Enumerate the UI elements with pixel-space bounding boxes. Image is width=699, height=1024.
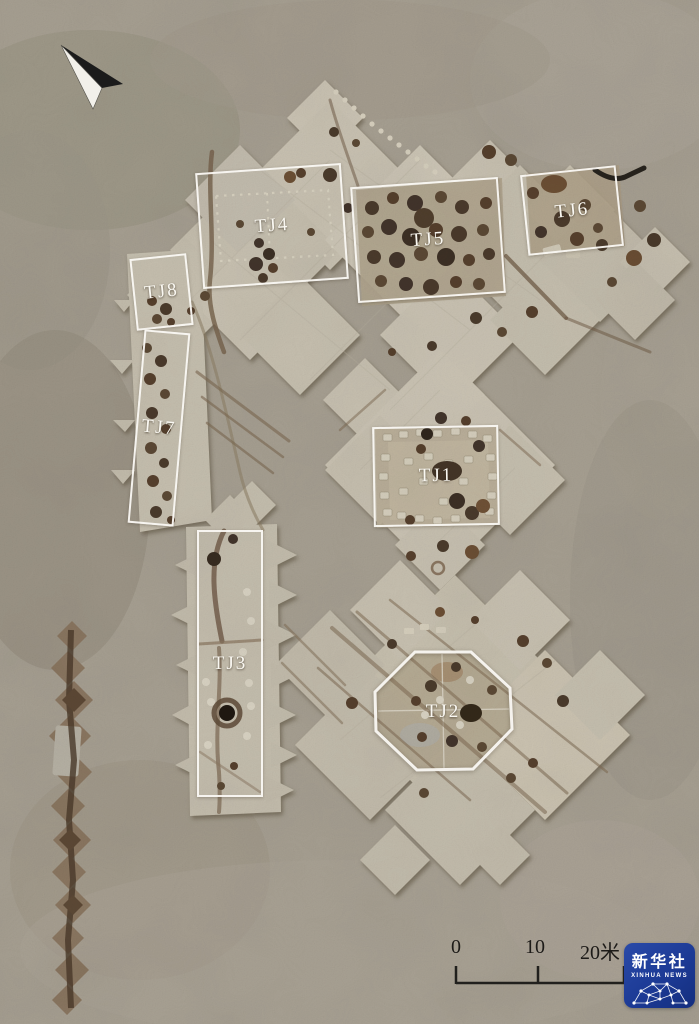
survey-box-tj6: TJ6 [520, 165, 624, 256]
globe-network-icon [631, 981, 689, 1006]
survey-label-tj5: TJ5 [410, 228, 446, 252]
survey-label-tj8: TJ8 [143, 279, 180, 304]
survey-box-tj1: TJ1 [372, 425, 500, 527]
xinhua-logo-cn: 新华社 [632, 948, 688, 972]
survey-label-tj2: TJ2 [426, 701, 461, 723]
survey-label-tj4: TJ4 [254, 214, 290, 238]
scale-tick-0: 0 [446, 936, 466, 959]
survey-box-tj5: TJ5 [350, 177, 506, 303]
scale-tick-10: 10 [515, 936, 555, 959]
survey-box-tj4: TJ4 [195, 163, 349, 289]
xinhua-logo: 新华社 XINHUA NEWS [624, 943, 695, 1008]
site-orthophoto [0, 0, 699, 1024]
north-arrow-icon [48, 36, 132, 120]
aerial-site-photo: TJ4 TJ5 TJ6 TJ8 TJ7 TJ1 TJ3 TJ2 0 10 20米… [0, 0, 699, 1024]
survey-label-tj1: TJ1 [419, 465, 454, 488]
survey-label-tj7: TJ7 [141, 416, 177, 441]
survey-box-tj8: TJ8 [129, 253, 193, 331]
xinhua-logo-en: XINHUA NEWS [631, 973, 688, 979]
survey-label-tj6: TJ6 [554, 198, 591, 223]
scale-bar: 0 10 20米 [440, 936, 650, 1000]
texture-grain [0, 0, 699, 1024]
survey-label-tj2-wrap: TJ2 [413, 698, 473, 726]
survey-label-tj3: TJ3 [213, 653, 248, 675]
survey-box-tj3: TJ3 [197, 530, 263, 797]
